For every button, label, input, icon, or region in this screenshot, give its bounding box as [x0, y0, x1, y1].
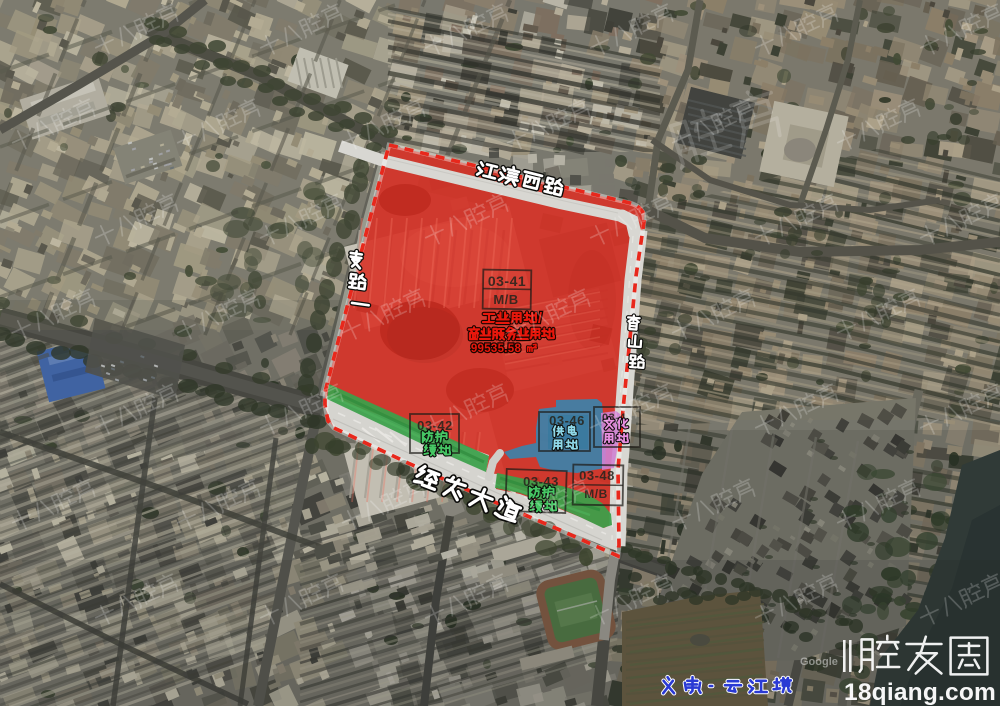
svg-text:Google: Google [800, 656, 838, 668]
svg-text:M/B: M/B [493, 292, 518, 307]
svg-text:18qiang.com: 18qiang.com [844, 679, 996, 706]
svg-text:03-48: 03-48 [579, 468, 615, 483]
svg-text:03-41: 03-41 [488, 273, 526, 289]
svg-text:99535.58: 99535.58 [471, 343, 522, 355]
